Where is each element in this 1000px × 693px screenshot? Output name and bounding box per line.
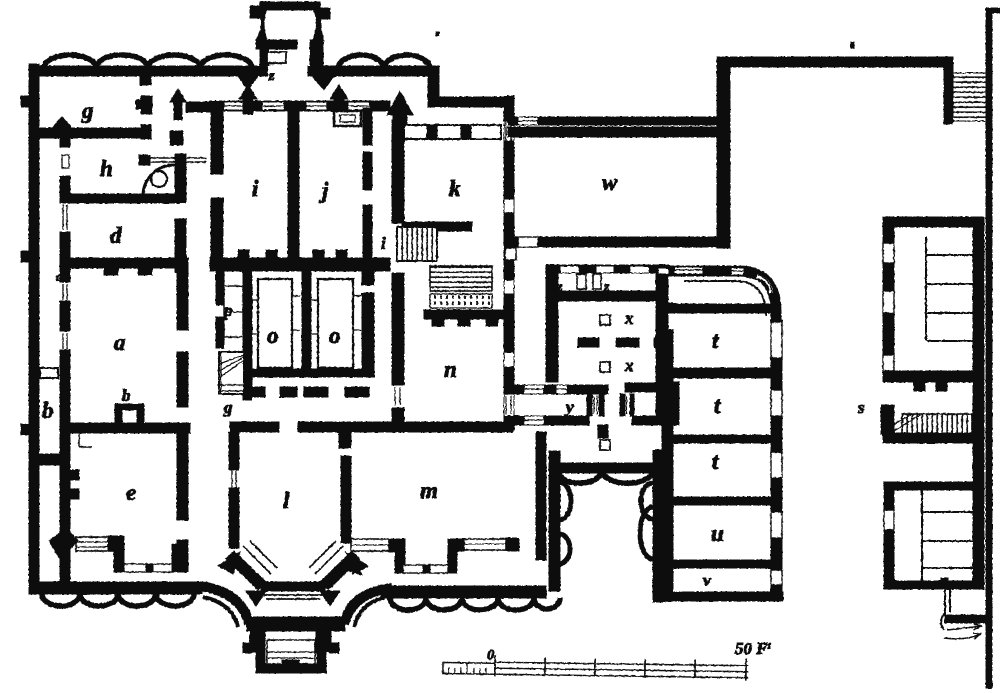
svg-text:u: u <box>711 521 724 546</box>
svg-text:z: z <box>556 280 563 295</box>
svg-text:50 Ft: 50 Ft <box>735 639 772 658</box>
svg-text:p: p <box>222 301 233 320</box>
svg-text:l: l <box>283 488 290 513</box>
svg-text:k: k <box>449 176 461 201</box>
svg-text:t: t <box>712 328 719 353</box>
svg-text:i: i <box>252 176 259 201</box>
svg-text:0: 0 <box>487 648 494 663</box>
svg-text:h: h <box>100 156 113 181</box>
svg-text:m: m <box>420 478 438 503</box>
svg-text:b: b <box>122 386 131 405</box>
svg-text:v: v <box>703 571 711 590</box>
svg-text:a: a <box>114 330 126 355</box>
svg-text:x: x <box>624 356 634 375</box>
svg-text:o: o <box>267 323 279 348</box>
svg-text:t: t <box>714 393 721 418</box>
svg-text:e: e <box>126 480 136 505</box>
svg-text:t: t <box>712 449 719 474</box>
svg-text:n: n <box>444 357 457 382</box>
svg-text:d: d <box>110 223 122 248</box>
svg-text:b: b <box>42 398 54 423</box>
svg-text:o: o <box>329 323 341 348</box>
svg-text:g: g <box>81 98 94 123</box>
svg-text:z: z <box>268 69 275 84</box>
svg-text:i: i <box>381 234 386 253</box>
svg-text:g: g <box>223 398 233 417</box>
svg-text:z: z <box>603 280 610 295</box>
svg-text:c: c <box>56 270 63 285</box>
svg-text:y: y <box>564 398 574 417</box>
svg-text:w: w <box>602 170 618 195</box>
svg-text:x: x <box>624 309 634 328</box>
svg-text:s: s <box>857 398 865 417</box>
